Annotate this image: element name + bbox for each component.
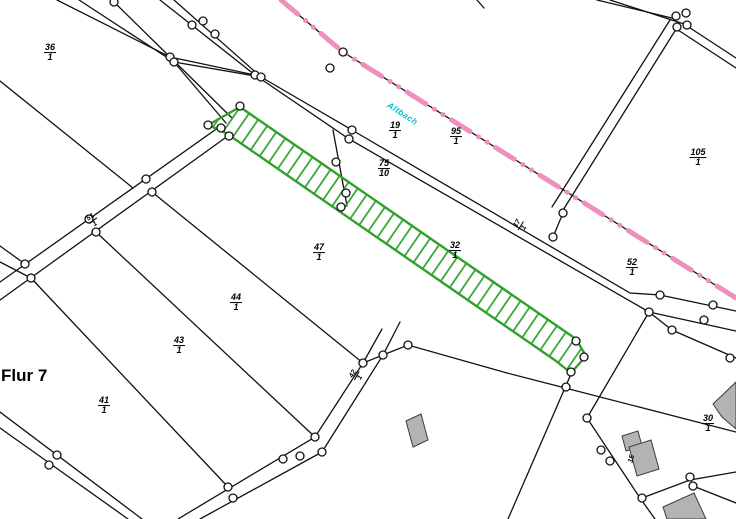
municipal-boundary-line — [281, 0, 736, 298]
building — [663, 493, 706, 519]
building — [406, 414, 428, 447]
cadastral-map-view: { "map": { "flur_label": "Flur 7", "stre… — [0, 0, 736, 519]
building — [629, 440, 659, 476]
stream-line — [281, 0, 736, 298]
buildings — [406, 382, 736, 519]
selected-parcel-highlight[interactable] — [208, 107, 586, 373]
map-canvas[interactable] — [0, 0, 736, 519]
building — [713, 382, 736, 429]
